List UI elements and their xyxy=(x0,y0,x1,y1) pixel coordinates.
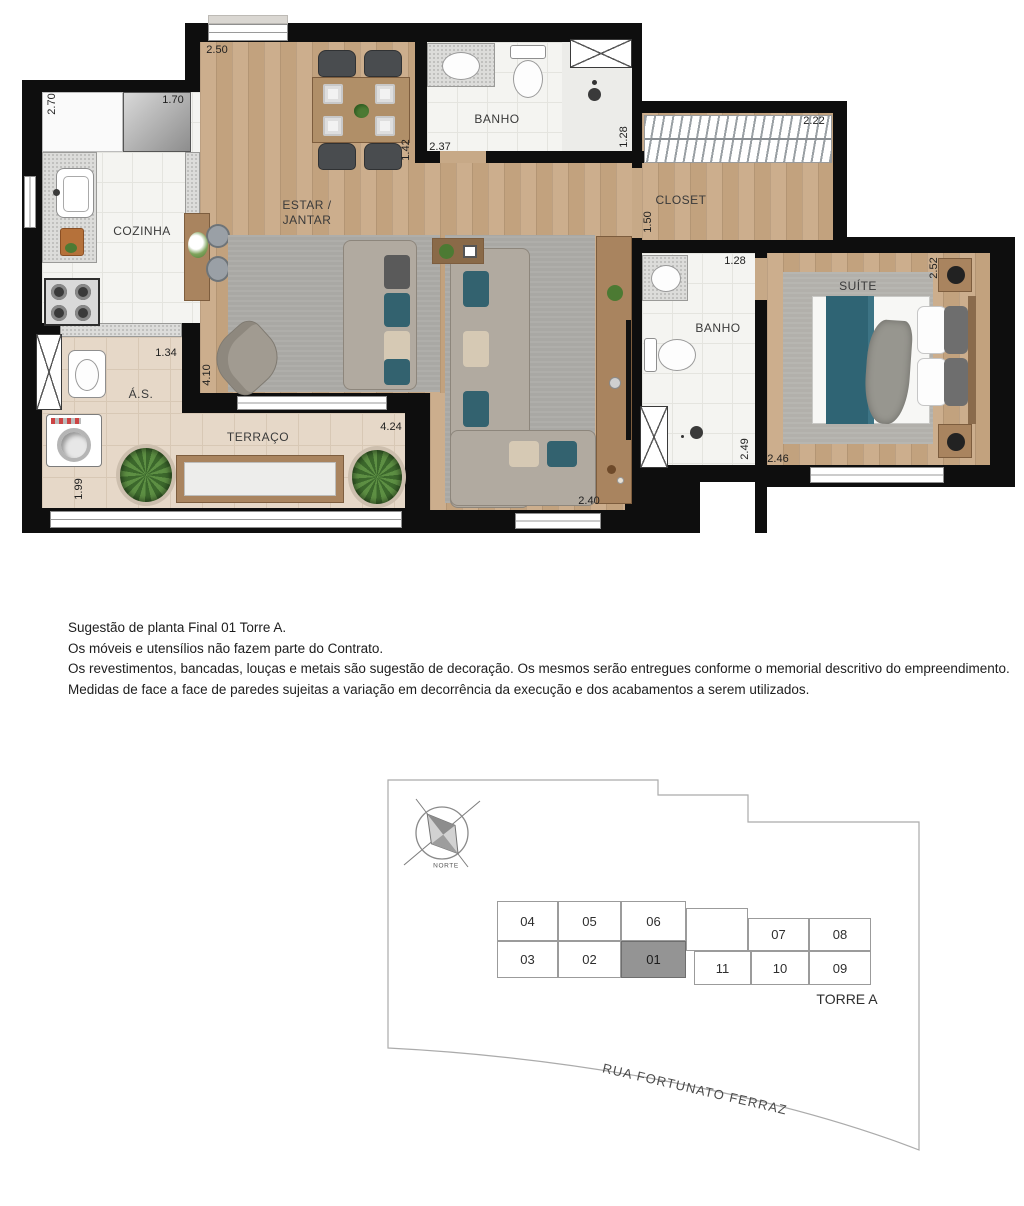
dim-banho-suite-d: 2.49 xyxy=(739,438,751,459)
dim-living-w: 2.40 xyxy=(578,495,599,507)
nightstand-lamp xyxy=(947,266,965,284)
compass-label: NORTE xyxy=(433,863,459,870)
room-label-banho-social: BANHO xyxy=(474,112,519,126)
window-terraco xyxy=(50,511,402,528)
shaft-banho-suite xyxy=(640,406,668,468)
door-suite xyxy=(755,258,767,300)
door-living-closet xyxy=(632,168,642,238)
washer-panel xyxy=(51,418,81,424)
dim-estar-right: 1.42 xyxy=(400,139,412,160)
kitchen-half-wall xyxy=(185,152,200,214)
unit-11: 11 xyxy=(694,951,751,985)
room-label-closet: CLOSET xyxy=(655,193,706,207)
terrace-bench xyxy=(176,455,344,503)
room-label-cozinha: COZINHA xyxy=(113,224,171,238)
kitchen-faucet xyxy=(53,189,60,196)
banho-social-toilet-bowl xyxy=(513,60,543,98)
nightstand xyxy=(938,424,972,458)
dim-suite-w: 2.46 xyxy=(767,453,788,465)
unit-02: 02 xyxy=(558,941,621,978)
cutting-board xyxy=(60,228,84,256)
disclaimer-line: Os revestimentos, bancadas, louças e met… xyxy=(68,659,1010,680)
dim-terraco-w: 4.24 xyxy=(380,421,401,433)
unit-09: 09 xyxy=(809,951,871,985)
wall-banho-social-left xyxy=(415,42,427,151)
room-label-suite: SUÍTE xyxy=(839,279,877,293)
dim-as-w: 1.34 xyxy=(155,347,176,359)
herb-sprig xyxy=(65,243,77,253)
pillow xyxy=(384,293,410,327)
sideboard-plant xyxy=(607,285,623,301)
dim-estar-top: 2.50 xyxy=(206,44,227,56)
dim-banho-suite-w: 1.28 xyxy=(724,255,745,267)
disclaimer-line: Medidas de face a face de paredes sujeit… xyxy=(68,680,1010,701)
nightstand-lamp xyxy=(947,433,965,451)
dim-banho-social-w: 2.37 xyxy=(429,141,450,153)
kitchen-sink-basin xyxy=(63,176,89,212)
bench-cushion xyxy=(184,462,336,496)
window-balcony xyxy=(208,24,288,41)
place-setting xyxy=(323,116,343,136)
pillow xyxy=(463,331,489,367)
pillow xyxy=(384,359,410,385)
disclaimer-line: Sugestão de planta Final 01 Torre A. xyxy=(68,618,1010,639)
bed-pillow xyxy=(917,358,947,406)
banho-social-counter xyxy=(427,43,495,87)
place-setting xyxy=(375,84,395,104)
sofa-chaise-bottom xyxy=(450,430,596,506)
dim-terraco-d: 1.99 xyxy=(73,478,85,499)
dining-chair xyxy=(364,143,402,170)
nightstand xyxy=(938,258,972,292)
headboard xyxy=(968,296,976,424)
kitchen-sink xyxy=(56,168,94,218)
bed-pillow-dark xyxy=(944,358,968,406)
burner xyxy=(75,284,91,300)
shaft-area-servico xyxy=(36,334,62,410)
shaft-banho-social xyxy=(570,39,632,68)
dining-chair xyxy=(318,143,356,170)
dim-suite-d: 2.52 xyxy=(928,257,940,278)
unit-10: 10 xyxy=(751,951,809,985)
window-living-south xyxy=(515,513,601,529)
sideboard-decor xyxy=(617,477,624,484)
banho-social-sink xyxy=(442,52,480,80)
laundry-sink xyxy=(68,350,106,398)
picture-frame xyxy=(463,245,477,258)
unit-07: 07 xyxy=(748,918,809,951)
wall-banho-suite-top xyxy=(632,240,755,253)
place-setting xyxy=(323,84,343,104)
entry-notch xyxy=(700,482,755,533)
banho-suite-toilet xyxy=(644,338,657,372)
compass-icon xyxy=(404,799,480,867)
terrace-plant xyxy=(120,448,172,502)
dim-cozinha-top: 1.70 xyxy=(162,94,183,106)
washer-drum xyxy=(57,428,91,462)
sideboard-decor xyxy=(607,465,616,474)
wall-banho-suite-bottom xyxy=(625,465,702,533)
terrace-plant xyxy=(352,450,402,504)
pillow xyxy=(463,271,489,307)
pillow xyxy=(547,441,577,467)
dining-chair xyxy=(318,50,356,77)
unit-03: 03 xyxy=(497,941,558,978)
console-table xyxy=(432,238,484,264)
banho-social-toilet xyxy=(510,45,546,59)
table-plant xyxy=(354,104,369,118)
disclaimer-line: Os móveis e utensílios não fazem parte d… xyxy=(68,639,1010,660)
bed-pillow xyxy=(917,306,947,354)
banho-suite-sink xyxy=(651,265,681,292)
room-label-banho-suite: BANHO xyxy=(695,321,740,335)
dim-living-d: 4.10 xyxy=(201,364,213,385)
window-living-terrace xyxy=(237,396,387,410)
burner xyxy=(75,305,91,321)
banho-suite-toilet-bowl xyxy=(658,339,696,371)
washing-machine xyxy=(46,414,102,467)
window-suite xyxy=(810,467,944,483)
room-label-estar-2: JANTAR xyxy=(283,213,332,227)
shower-head-suite xyxy=(690,426,703,439)
window-kitchen xyxy=(24,176,36,228)
island-stool xyxy=(206,224,230,248)
dim-closet-w: 2.22 xyxy=(803,115,824,127)
pillow xyxy=(384,255,410,289)
stove xyxy=(44,278,100,326)
wall-terrace-right xyxy=(405,393,430,533)
shower-head-social xyxy=(588,88,601,101)
unit-01-highlighted: 01 xyxy=(621,941,686,978)
unit-05: 05 xyxy=(558,901,621,941)
sofa-left xyxy=(343,240,417,390)
laundry-sink-basin xyxy=(75,359,99,391)
balcony-slab xyxy=(208,15,288,24)
pillow xyxy=(509,441,539,467)
console-plant xyxy=(439,244,454,259)
room-label-as: Á.S. xyxy=(129,387,154,401)
dim-closet-door: 1.50 xyxy=(642,211,654,232)
floor-plan: COZINHA ESTAR / JANTAR BANHO CLOSET BANH… xyxy=(0,0,1024,560)
tower-label: TORRE A xyxy=(816,991,877,1007)
bed-pillow-dark xyxy=(944,306,968,354)
island-stool xyxy=(206,256,230,282)
sideboard-decor xyxy=(609,377,621,389)
floor-plan-page: COZINHA ESTAR / JANTAR BANHO CLOSET BANH… xyxy=(0,0,1024,1206)
burner xyxy=(51,284,67,300)
island-flowers xyxy=(188,232,208,258)
room-label-estar-1: ESTAR / xyxy=(282,198,331,212)
dining-table xyxy=(312,77,410,143)
burner xyxy=(51,305,67,321)
dining-chair xyxy=(364,50,402,77)
place-setting xyxy=(375,116,395,136)
tv xyxy=(626,320,631,440)
pillow xyxy=(463,391,489,427)
banho-suite-counter xyxy=(642,255,688,301)
dim-banho-social-d: 1.28 xyxy=(618,126,630,147)
dim-cozinha-left: 2.70 xyxy=(46,93,58,114)
unit-04: 04 xyxy=(497,901,558,941)
unit-08: 08 xyxy=(809,918,871,951)
disclaimer-block: Sugestão de planta Final 01 Torre A. Os … xyxy=(68,618,1010,700)
unit-06: 06 xyxy=(621,901,686,941)
tower-core xyxy=(686,908,748,951)
room-label-terraco: TERRAÇO xyxy=(227,430,289,444)
